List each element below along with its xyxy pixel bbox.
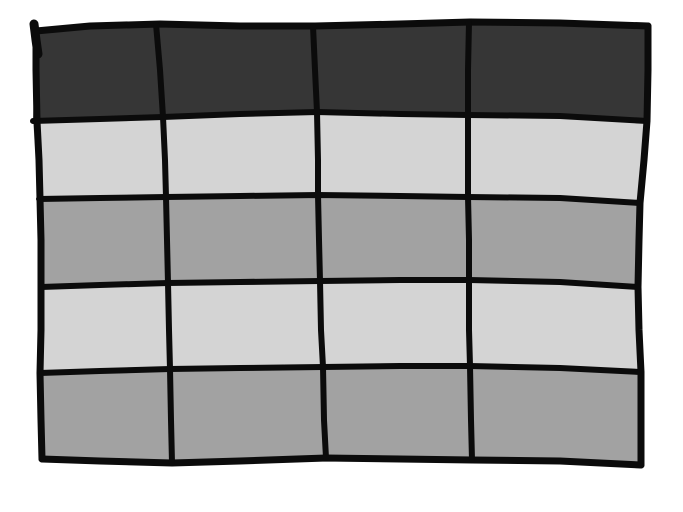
table-row-fill [40,280,641,373]
table-row-fills [33,22,648,465]
table-header-row-fill [33,22,648,121]
sketch-canvas [0,0,683,512]
table-row-fill [40,366,641,465]
hand-drawn-table [0,0,683,512]
table-row-fill [33,112,647,203]
table-horizontal-line [42,458,641,465]
pen-blob [34,24,38,54]
table-row-fill [39,195,640,287]
